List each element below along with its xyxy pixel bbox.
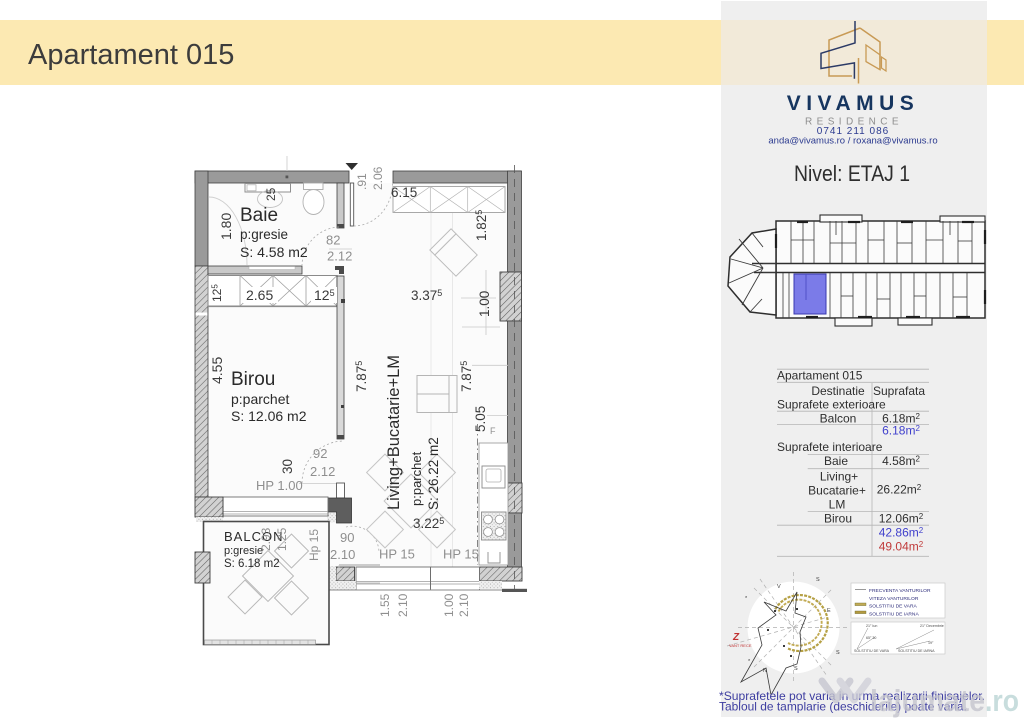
svg-text:1.25: 1.25 [275, 527, 289, 551]
svg-text:Baie: Baie [240, 205, 278, 226]
svg-text:SOLSTITIU DE IARNA: SOLSTITIU DE IARNA [898, 649, 935, 653]
svg-text:anda@vivamus.ro / roxana@vivam: anda@vivamus.ro / roxana@vivamus.ro [768, 136, 937, 147]
svg-text:1.80: 1.80 [218, 213, 234, 240]
svg-text:2.12: 2.12 [327, 249, 352, 264]
svg-text:S: 4.58 m2: S: 4.58 m2 [240, 244, 308, 260]
svg-text:2.65: 2.65 [246, 287, 273, 303]
svg-text:Suprafete exterioare: Suprafete exterioare [777, 398, 886, 412]
svg-text:2.10: 2.10 [330, 547, 355, 562]
svg-text:HP 15: HP 15 [443, 547, 479, 562]
svg-text:2.12: 2.12 [310, 464, 335, 479]
svg-text:12.06m2: 12.06m2 [879, 512, 924, 526]
svg-text:S: 26.22 m2: S: 26.22 m2 [426, 437, 441, 510]
svg-text:Z: Z [732, 632, 740, 643]
svg-text:HP 15: HP 15 [379, 547, 415, 562]
svg-text:N: N [763, 668, 767, 674]
svg-text:p:gresie: p:gresie [224, 545, 263, 557]
svg-text:5.05: 5.05 [473, 406, 488, 432]
svg-text:Birou: Birou [824, 512, 852, 526]
svg-text:VITEZA VANTURILOR: VITEZA VANTURILOR [869, 596, 919, 602]
svg-text:Birou: Birou [231, 369, 275, 390]
svg-text:1.00: 1.00 [477, 291, 492, 317]
svg-text:65° 30: 65° 30 [866, 636, 876, 640]
svg-text:82: 82 [326, 233, 340, 248]
svg-text:FRECVENTA VANTURILOR: FRECVENTA VANTURILOR [869, 588, 931, 594]
svg-text:p:parchet: p:parchet [409, 451, 424, 506]
svg-text:VIVAMUS: VIVAMUS [787, 92, 920, 115]
svg-text:LM: LM [829, 498, 846, 512]
svg-text:Destinatie: Destinatie [811, 384, 865, 398]
svg-text:VANT RECE: VANT RECE [729, 643, 752, 648]
svg-text:V: V [777, 584, 781, 590]
svg-text:Apartament 015: Apartament 015 [777, 369, 863, 383]
svg-text:42.86m2: 42.86m2 [879, 526, 924, 540]
svg-text:25: 25 [264, 187, 278, 201]
svg-text:S: S [836, 650, 840, 656]
svg-text:S: S [816, 577, 820, 583]
svg-text:21° Iun: 21° Iun [866, 624, 877, 628]
svg-text:2.10: 2.10 [396, 593, 410, 617]
svg-text:Balcon: Balcon [820, 411, 857, 425]
svg-text:E: E [827, 608, 831, 614]
svg-text:1.00: 1.00 [442, 593, 456, 617]
svg-text:Hp 15: Hp 15 [307, 529, 321, 561]
svg-text:p:gresie: p:gresie [240, 227, 288, 242]
svg-text:26.22m2: 26.22m2 [877, 483, 922, 497]
svg-text:Bucatarie+: Bucatarie+ [808, 484, 866, 498]
svg-text:.91: .91 [355, 173, 369, 190]
svg-text:Suprafata: Suprafata [873, 384, 925, 398]
svg-text:SOLSTITIU DE IARNA: SOLSTITIU DE IARNA [869, 612, 919, 618]
svg-text:21° Decembrie: 21° Decembrie [920, 624, 944, 628]
svg-text:Living+: Living+ [820, 470, 858, 484]
svg-text:90: 90 [340, 530, 354, 545]
svg-text:6.15: 6.15 [391, 185, 417, 200]
svg-text:S: 12.06 m2: S: 12.06 m2 [231, 408, 307, 424]
svg-text:F: F [490, 426, 496, 436]
svg-text:49.04m2: 49.04m2 [879, 540, 924, 554]
svg-text:Baie: Baie [824, 454, 848, 468]
svg-text:HP 1.00: HP 1.00 [256, 478, 303, 493]
svg-text:4.55: 4.55 [209, 357, 225, 384]
svg-text:Living+Bucatarie+LM: Living+Bucatarie+LM [385, 355, 403, 510]
svg-text:30: 30 [280, 459, 295, 474]
svg-text:S: 6.18 m2: S: 6.18 m2 [224, 558, 280, 570]
svg-text:p:parchet: p:parchet [231, 391, 289, 407]
svg-text:6.18m2: 6.18m2 [882, 424, 920, 438]
svg-text:Suprafete interioare: Suprafete interioare [777, 440, 883, 454]
svg-text:92: 92 [313, 446, 327, 461]
svg-text:2.10: 2.10 [457, 593, 471, 617]
svg-text:lajumate: lajumate [870, 683, 985, 718]
svg-text:S: S [794, 666, 798, 672]
svg-text:Apartament 015: Apartament 015 [28, 39, 234, 71]
svg-text:2.93: 2.93 [259, 527, 273, 551]
svg-text:19°: 19° [928, 641, 934, 645]
svg-text:2.06: 2.06 [371, 166, 385, 190]
svg-text:Nivel: ETAJ 1: Nivel: ETAJ 1 [794, 161, 910, 186]
svg-text:.ro: .ro [985, 683, 1019, 718]
svg-text:1.55: 1.55 [378, 593, 392, 617]
svg-text:SOLSTITIU DE VARA: SOLSTITIU DE VARA [854, 649, 890, 653]
svg-text:4.58m2: 4.58m2 [882, 454, 920, 468]
svg-text:SOLSTITIU DE VARA: SOLSTITIU DE VARA [869, 604, 917, 610]
